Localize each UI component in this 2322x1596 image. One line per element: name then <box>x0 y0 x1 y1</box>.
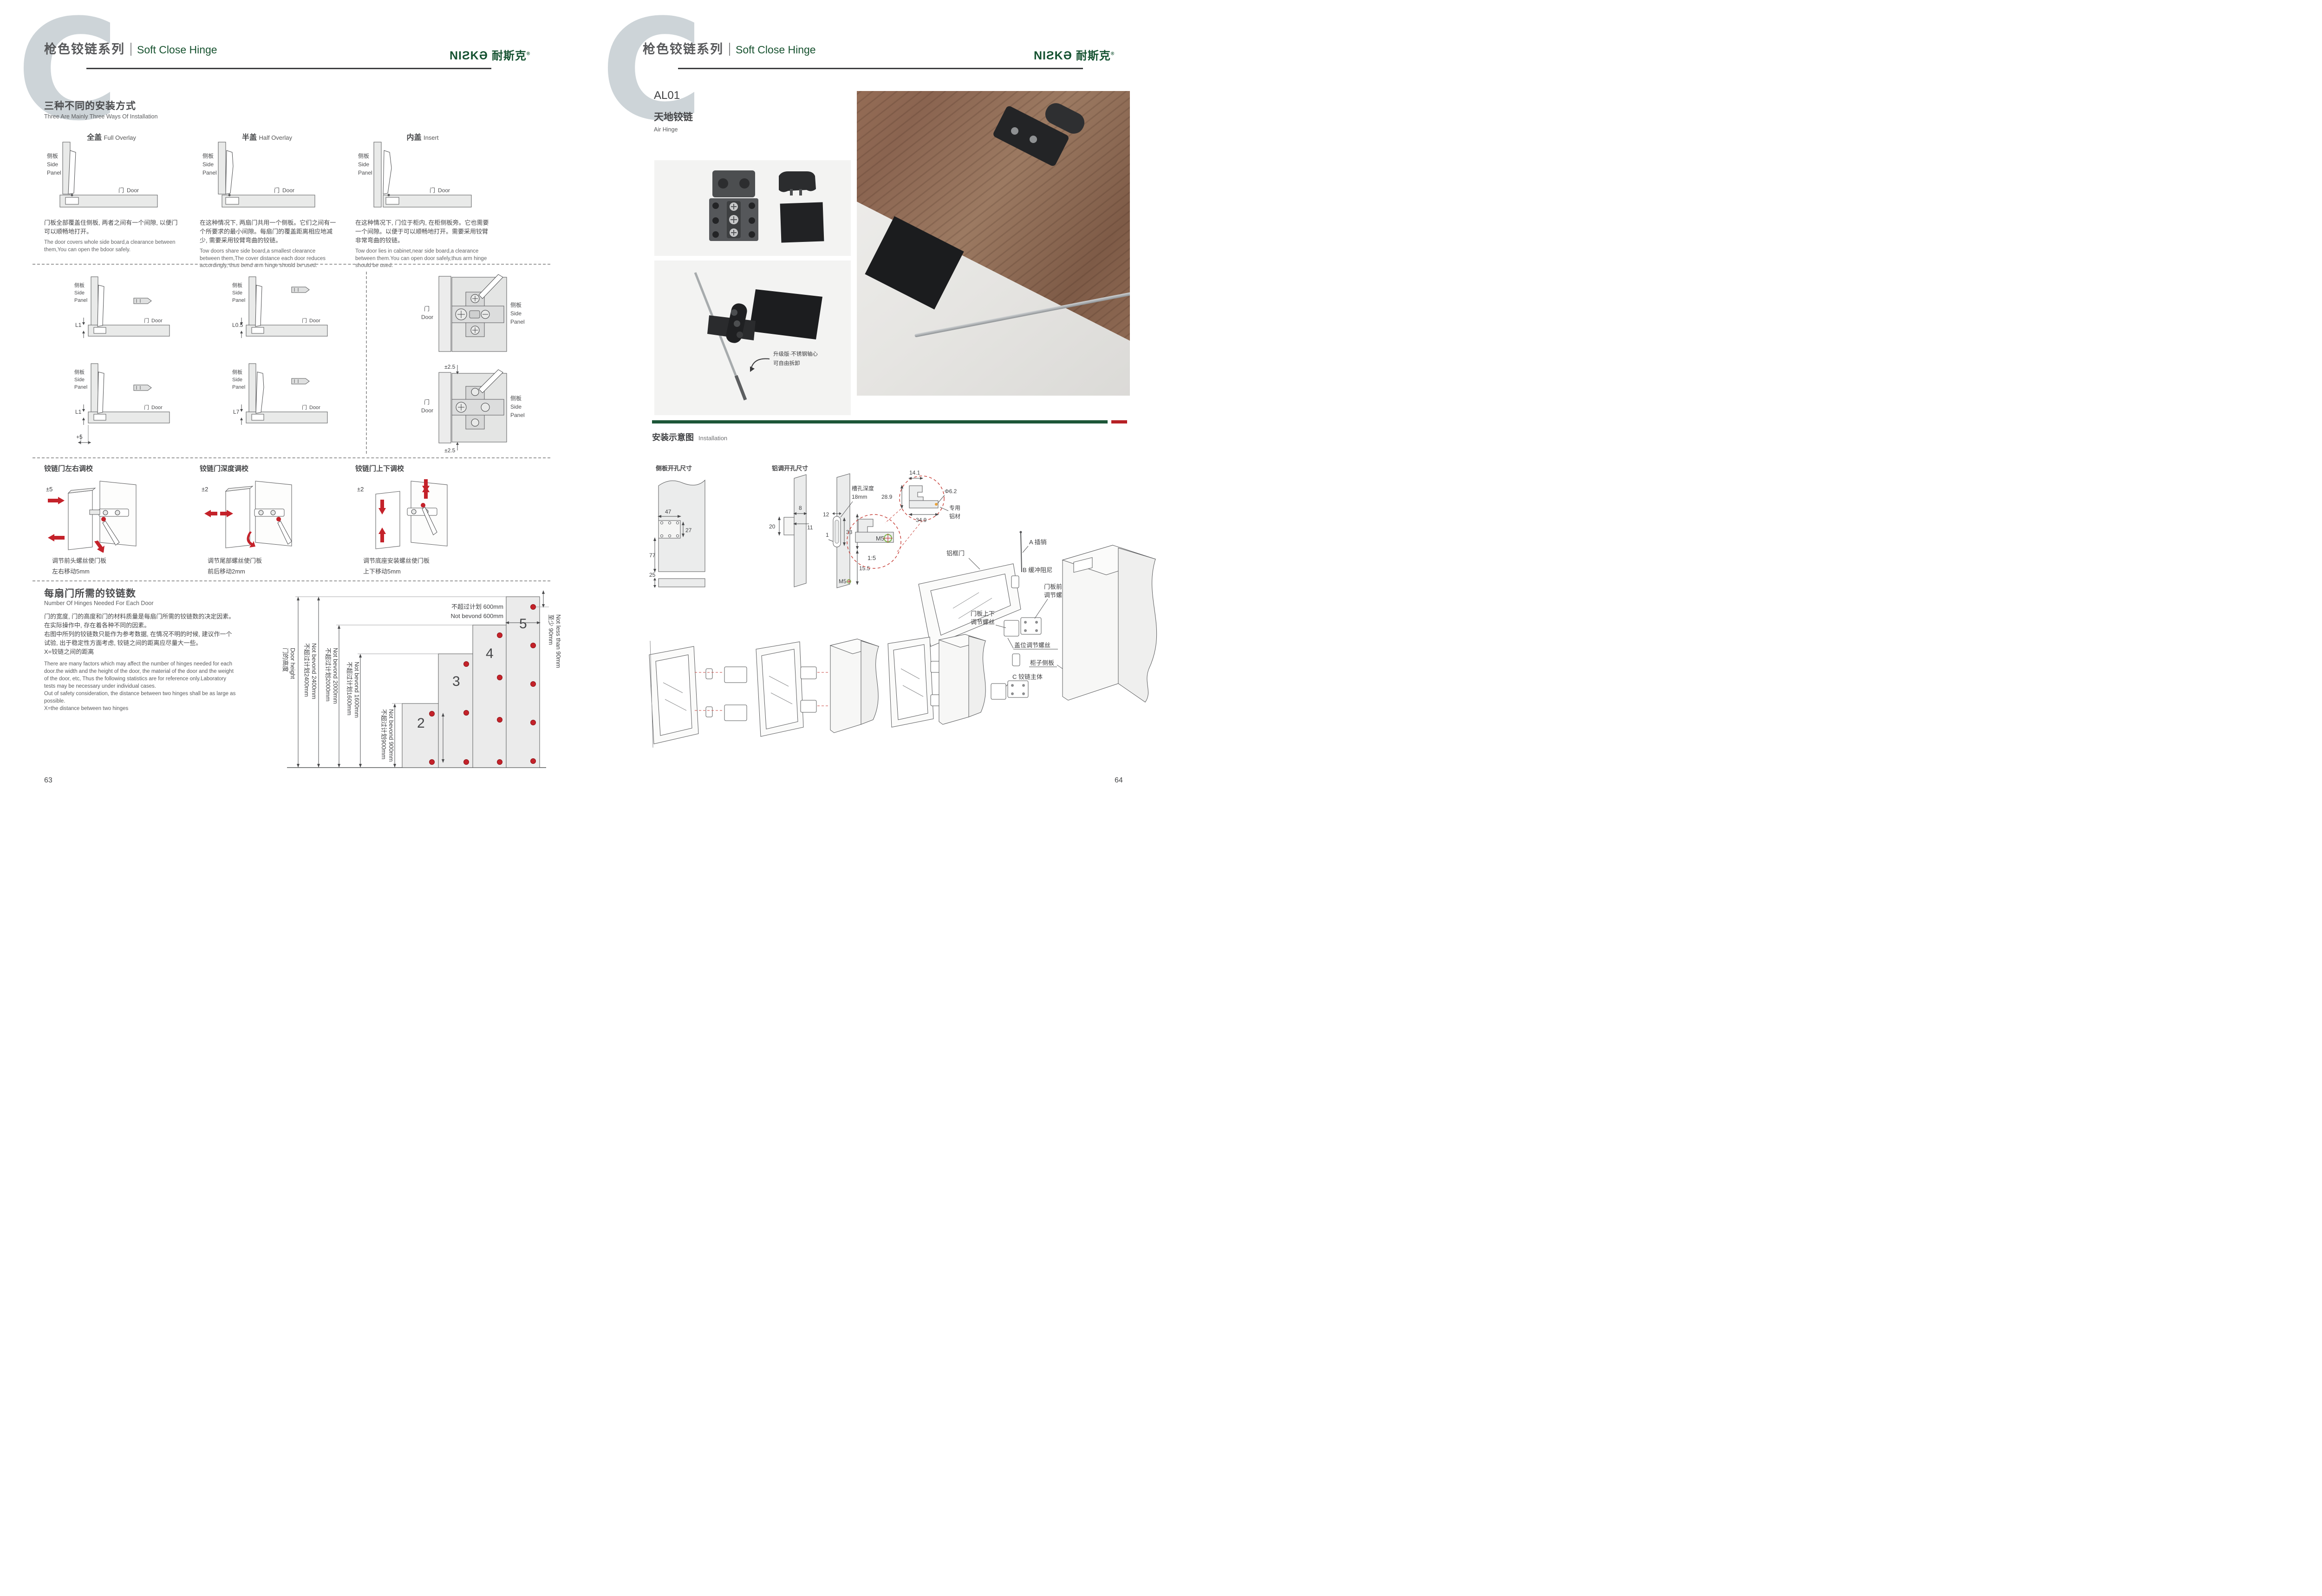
cn-line: 在实际操作中, 存在着各种不同的因素。 <box>44 621 272 630</box>
door-label-cn: 门 <box>274 187 280 194</box>
label-up-down-1: 门板上下 <box>971 610 995 617</box>
desc-en: The door covers whole side board,a clear… <box>44 239 181 254</box>
door-label-cn: 门 <box>302 404 307 410</box>
en-line: Out of safety consideration, the distanc… <box>44 690 272 697</box>
note-arrowhead <box>750 366 755 372</box>
sec1-title-cn: 三种不同的安装方式 <box>44 98 136 112</box>
door-label-cn: 门 <box>424 305 430 312</box>
product-name-en: Air Hinge <box>654 126 678 133</box>
divider-dashed-vertical <box>366 272 367 454</box>
label-2000-cn: 不超过计划2000mm <box>325 648 332 702</box>
adjust-value: ±2 <box>357 486 364 493</box>
page-number-64: 64 <box>1115 776 1123 785</box>
side-panel-label-cn: 侧板 <box>232 282 242 288</box>
alu-label-2: 铝材 <box>949 513 960 520</box>
door-label-en: Door <box>151 318 163 324</box>
cap-line1: 调节底座安装螺丝使门板 <box>363 555 430 566</box>
label-2400-cn: 不超过计划2400mm <box>303 643 310 697</box>
desc-cn: 在这种情况下, 门位于柜内, 在柜侧板旁。它也需要一个间隙。以便于可以顺畅地打开… <box>355 218 492 245</box>
cross-section-L7: L7 侧板 Side Panel 门 Door <box>232 360 334 453</box>
mounting-plate-view-2: ±2.5 ±2.5 门 Door 侧板 Side Panel <box>420 361 532 454</box>
panel-label-en: Panel <box>202 169 217 176</box>
adjust-diagram-depth: ±2 <box>200 473 325 553</box>
dim-8: 8 <box>799 505 802 511</box>
side-label-en: Side <box>74 290 85 296</box>
photo-pin-illustration <box>654 261 851 415</box>
product-name-cn: 天地铰链 <box>654 110 693 124</box>
sec1-title-en: Three Are Mainly Three Ways Of Installat… <box>44 113 158 120</box>
label-1600-en: Not bevond 1600mm <box>353 662 360 718</box>
cap-line2: 左右移动5mm <box>52 566 106 577</box>
bar-label-2: 2 <box>417 716 425 731</box>
cap-line1: 调节尾部螺丝使门板 <box>208 555 262 566</box>
dim-141: 14.1 <box>909 469 920 476</box>
desc-cn: 门板全部覆盖住侧板, 两者之间有一个间隙, 以便门可以顺畅地打开。 <box>44 218 181 236</box>
side-label-en: Side <box>510 404 522 410</box>
desc-insert: 在这种情况下, 门位于柜内, 在柜侧板旁。它也需要一个间隙。以便于可以顺畅地打开… <box>355 218 492 270</box>
label-cover-screw: 盖位调节螺丝 <box>1014 642 1050 649</box>
alu-drill-title: 铝调开孔尺寸 <box>772 463 808 472</box>
panel-label-en: Panel <box>232 298 245 303</box>
side-panel-label-cn: 侧板 <box>510 395 522 402</box>
cn-line: 右图中所列的铰链数只能作为参考数据, 在情况不明的时候, 建议作一个 <box>44 630 272 638</box>
logo-cn: 耐斯克 <box>492 50 527 62</box>
brand-logo-right: NIƧKƏ 耐斯克® <box>1034 46 1115 63</box>
sec3-desc-cn: 门的宽度, 门的高度和门的材料质量是每扇门所需的铰链数的决定因素。 在实际操作中… <box>44 612 272 656</box>
label-600-en: Not bevond 600mm <box>451 612 503 619</box>
separator-band-red <box>1111 420 1127 423</box>
cap-line1: 调节前头螺丝使门板 <box>52 555 106 566</box>
mounting-plate-view-1: 门 Door 侧板 Side Panel <box>420 272 532 360</box>
dim-top-25: ±2.5 <box>444 364 456 370</box>
en-line: door.the width and the height of the doo… <box>44 668 272 675</box>
door-height-cn: 门的高度 <box>282 648 289 672</box>
door-label-en: Door <box>282 187 294 194</box>
side-panel-label-cn: 侧板 <box>202 153 214 159</box>
series-title-cn: 枪色铰链系列 <box>44 42 125 56</box>
registered-mark: ® <box>1111 52 1115 57</box>
installation-heading: 安装示意图Installation <box>652 431 727 443</box>
divider-dashed-2 <box>33 457 550 458</box>
desc-cn: 在这种情况下, 两扇门共用一个侧板。它们之间有一个所要求的最小间隙。每扇门的覆盖… <box>200 218 337 245</box>
door-label-en: Door <box>421 314 433 320</box>
door-label-en: Door <box>309 318 320 324</box>
bar-label-4: 4 <box>486 646 494 661</box>
label-damper: B 缓冲阻尼 <box>1023 567 1052 573</box>
side-drill-title: 侧板开孔尺寸 <box>656 463 692 472</box>
installation-title-en: Installation <box>698 435 727 442</box>
installation-title-cn: 安装示意图 <box>652 433 694 442</box>
cn-line: 试验, 出于稳定性方面考虑, 铰链之间的距离应尽量大一些。 <box>44 638 272 647</box>
page-header-left: 枪色铰链系列Soft Close Hinge <box>44 39 217 57</box>
cross-section-L1-plus5: L1 +5 侧板 Side Panel 门 Door <box>74 360 176 453</box>
side-panel-label-cn: 侧板 <box>74 369 85 375</box>
door-label-en: Door <box>151 405 163 410</box>
label-900-en: Not bevond 900mm <box>388 709 395 762</box>
hinge-screw <box>1030 136 1037 143</box>
door-label-cn: 门 <box>118 187 124 194</box>
label-alu-door: 铝框门 <box>946 550 965 557</box>
dim-12: 12 <box>823 511 829 518</box>
sec3-desc-en: There are many factors which may affect … <box>44 660 272 712</box>
adjust-title-depth: 铰链门深度调校 <box>200 463 248 473</box>
insert-diagram: 侧板 Side Panel 门 Door <box>355 139 490 214</box>
side-panel-label-cn: 侧板 <box>232 369 242 375</box>
side-panel-label-cn: 侧板 <box>74 282 85 288</box>
label-2000-en: Not bevond 2000mm <box>332 648 339 704</box>
dim-plus5: +5 <box>76 434 83 440</box>
dim-L1: L1 <box>75 322 82 328</box>
desc-en: Tow doors share side board,a smallest cl… <box>200 248 337 270</box>
label-2400-en: Not bevond 2400mm <box>311 643 318 699</box>
product-code: AL01 <box>654 89 680 102</box>
door-label-cn: 门 <box>430 187 435 194</box>
divider-dashed-1 <box>33 264 550 265</box>
page-header-right: 枪色铰链系列Soft Close Hinge <box>643 39 816 57</box>
note-line1: 升级版·不锈钢轴心 <box>773 350 818 359</box>
red-arrow-right-icon <box>48 497 65 504</box>
panel-label-en: Panel <box>74 298 87 303</box>
half-overlay-diagram: 侧板 Side Panel 门 Door <box>200 139 334 214</box>
en-line: There are many factors which may affect … <box>44 660 272 668</box>
side-label-en: Side <box>202 161 214 168</box>
label-min90-en: Not less than 90mm <box>555 614 562 668</box>
door-label-cn: 门 <box>424 398 430 405</box>
dim-bottom-25: ±2.5 <box>444 447 456 454</box>
dim-47: 47 <box>665 508 672 515</box>
separator-band-green <box>652 420 1108 423</box>
cn-line: X=铰链之间的距离 <box>44 647 272 656</box>
panel-label-en: Panel <box>232 384 245 390</box>
panel-label-en: Panel <box>358 169 372 176</box>
door-label-en: Door <box>438 187 450 194</box>
exploded-installation-diagram: A 插销 铝框门 B 缓冲阻尼 门板前后 调节螺丝 门板上下 调节螺丝 盖位调节… <box>646 529 1167 782</box>
cross-section-L05: L0.5 侧板 Side Panel 门 Door <box>232 273 334 361</box>
panel-label-en: Panel <box>47 169 61 176</box>
panel-label-en: Panel <box>510 412 525 418</box>
label-up-down-2: 调节螺丝 <box>971 619 995 625</box>
adjust-value: ±5 <box>46 486 52 493</box>
dim-L1b: L1 <box>75 409 82 415</box>
label-600-cn: 不超过计划 600mm <box>451 603 503 610</box>
cross-section-L1: L1 侧板 Side Panel 门 Door <box>74 273 176 361</box>
bar-label-3: 3 <box>452 674 460 689</box>
door-label-cn: 门 <box>302 317 307 324</box>
desc-half-overlay: 在这种情况下, 两扇门共用一个侧板。它们之间有一个所要求的最小间隙。每扇门的覆盖… <box>200 218 337 270</box>
panel-label-en: Panel <box>510 319 525 325</box>
side-panel-label-cn: 侧板 <box>358 153 369 159</box>
door-label-cn: 门 <box>144 317 149 324</box>
side-panel-label-cn: 侧板 <box>510 302 522 308</box>
product-photo-parts <box>654 160 851 256</box>
sec3-title-en: Number Of Hinges Needed For Each Door <box>44 600 154 606</box>
side-label-en: Side <box>232 290 242 296</box>
application-photo-wood <box>857 91 1130 396</box>
label-900-cn: 不超过计划900mm <box>380 709 387 759</box>
adjust-diagram-up-down: ±2 <box>355 473 481 553</box>
label-min90-cn: 至少 90mm <box>548 614 554 645</box>
side-label-en: Side <box>74 377 85 383</box>
red-arrow-left-icon <box>48 534 65 541</box>
series-title-en: Soft Close Hinge <box>137 44 217 56</box>
adjust-title-lr: 铰链门左右调校 <box>44 463 93 473</box>
header-rule-right <box>678 68 1083 69</box>
side-panel-label-cn: 侧板 <box>47 153 58 159</box>
dim-349: 34.9 <box>916 517 927 523</box>
red-arrow-left-icon <box>204 510 217 517</box>
door-label-en: Door <box>309 405 320 410</box>
logo-latin: NIƧKƏ <box>1034 49 1072 62</box>
door-height-en: Door height <box>289 648 296 679</box>
series-title-en: Soft Close Hinge <box>736 44 816 56</box>
logo-cn: 耐斯克 <box>1076 50 1111 62</box>
label-pin: A 插销 <box>1029 539 1047 546</box>
desc-full-overlay: 门板全部覆盖住侧板, 两者之间有一个间隙, 以便门可以顺畅地打开。 The do… <box>44 218 181 254</box>
dim-phi62: Φ6.2 <box>945 488 957 495</box>
panel-label-en: Panel <box>74 384 87 390</box>
note-line2: 可自由拆卸 <box>773 359 818 368</box>
dim-20: 20 <box>769 523 776 530</box>
bar-label-5: 5 <box>519 616 527 632</box>
side-label-en: Side <box>358 161 369 168</box>
series-title-cn: 枪色铰链系列 <box>643 42 724 56</box>
adjust-caption-ud: 调节底座安装螺丝使门板 上下移动5mm <box>363 555 430 577</box>
photo-parts-illustration <box>654 160 851 256</box>
logo-latin: NIƧKƏ <box>450 49 488 62</box>
photo-note: 升级版·不锈钢轴心 可自由拆卸 <box>773 350 818 368</box>
en-line: X=the distance between two hinges <box>44 705 272 712</box>
product-photo-pin: 升级版·不锈钢轴心 可自由拆卸 <box>654 261 851 415</box>
header-divider-bar <box>130 43 131 56</box>
catalog-spread: C 枪色铰链系列Soft Close Hinge NIƧKƏ 耐斯克® 三种不同… <box>0 0 1168 798</box>
adjust-value: ±2 <box>202 486 208 493</box>
side-label-en: Side <box>510 310 522 317</box>
door-label-cn: 门 <box>144 404 149 410</box>
label-1600-cn: 不超过计划1600mm <box>346 662 353 716</box>
side-label-en: Side <box>232 377 242 383</box>
hinge-count-chart: 2 3 4 5 门的高度 Door height <box>278 578 566 782</box>
door-label-en: Door <box>421 407 433 414</box>
door-label-en: Door <box>127 187 139 194</box>
dim-L7: L7 <box>233 409 240 415</box>
header-rule-left <box>86 68 491 69</box>
en-line: of the door, etc, Thus the following sta… <box>44 675 272 683</box>
adjust-diagram-left-right: ±5 <box>44 473 170 553</box>
page-number-63: 63 <box>44 776 52 785</box>
alu-label-1: 专用 <box>949 504 960 511</box>
dim-L05: L0.5 <box>232 322 243 328</box>
en-line: possible. <box>44 697 272 705</box>
adjust-title-ud: 铰链门上下调校 <box>355 463 404 473</box>
adjust-caption-depth: 调节尾部螺丝使门板 前后移动2mm <box>208 555 262 577</box>
label-cabinet-side: 柜子侧板 <box>1030 659 1054 666</box>
cap-line2: 前后移动2mm <box>208 566 262 577</box>
sec3-title-cn: 每扇门所需的铰链数 <box>44 586 136 600</box>
desc-en: Tow door lies in cabinet,near side board… <box>355 248 492 270</box>
brand-logo: NIƧKƏ 耐斯克® <box>450 46 530 63</box>
label-hinge-body: C 铰链主体 <box>1012 673 1043 680</box>
side-label-en: Side <box>47 161 58 168</box>
dim-289: 28.9 <box>881 494 893 500</box>
hinge-screw <box>1011 127 1018 135</box>
registered-mark: ® <box>527 52 530 57</box>
cap-line2: 上下移动5mm <box>363 566 430 577</box>
header-divider-bar <box>729 43 730 56</box>
en-line: tests may be necessary under individual … <box>44 683 272 690</box>
adjust-caption-lr: 调节前头螺丝使门板 左右移动5mm <box>52 555 106 577</box>
cn-line: 门的宽度, 门的高度和门的材料质量是每扇门所需的铰链数的决定因素。 <box>44 612 272 621</box>
full-overlay-diagram: 侧板 Side Panel 门 Door <box>44 139 179 214</box>
